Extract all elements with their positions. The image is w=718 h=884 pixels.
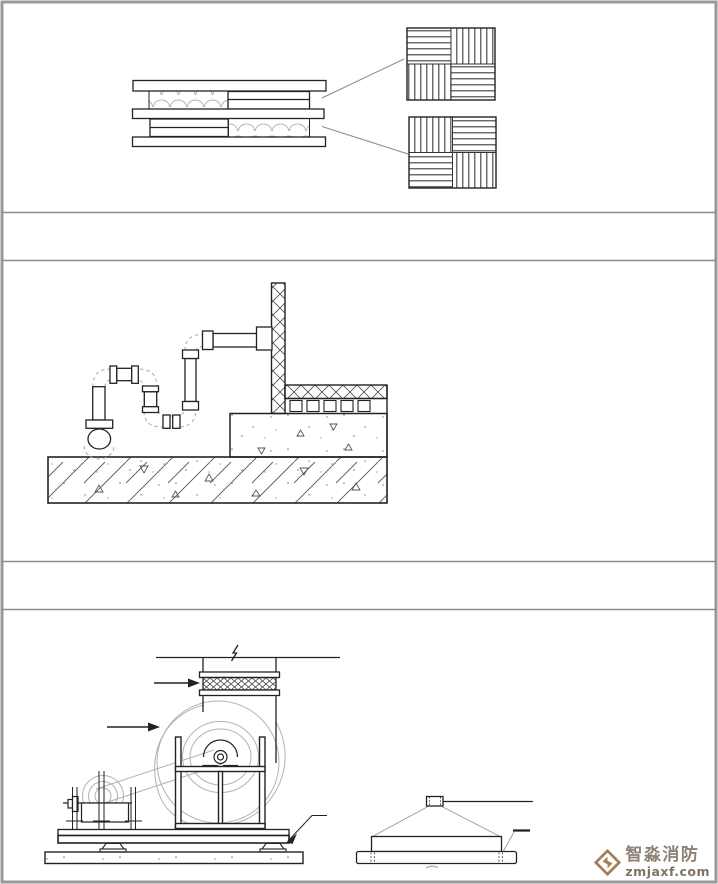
insulation-infill-bottom-right bbox=[228, 119, 309, 138]
cad-drawing bbox=[0, 0, 718, 884]
fan-installation-drawing bbox=[45, 645, 533, 868]
hatch-detail-top bbox=[407, 28, 495, 100]
watermark: 智淼消防 zmjaxf.com bbox=[591, 846, 713, 879]
isolator-base-pad bbox=[357, 852, 517, 864]
mounting-studs bbox=[66, 771, 142, 829]
anchor-blocks bbox=[290, 401, 370, 412]
motor-drive bbox=[63, 771, 142, 829]
top-plate bbox=[133, 81, 326, 92]
insulation-infill-top-left bbox=[149, 91, 228, 109]
conduit-wall-section-drawing bbox=[48, 283, 387, 503]
arrow-icon bbox=[154, 679, 200, 688]
bottom-plate bbox=[133, 137, 326, 147]
floor-slab bbox=[48, 457, 387, 503]
pipe-break-icon bbox=[232, 645, 239, 661]
concrete-pad bbox=[45, 852, 303, 864]
panel-infill-top-right bbox=[228, 92, 310, 110]
sandwich-assembly-drawing bbox=[133, 81, 327, 147]
arrow-icon bbox=[107, 723, 160, 732]
isolator-leader-line bbox=[287, 816, 328, 845]
watermark-brand: 智淼消防 bbox=[625, 847, 710, 865]
middle-plate bbox=[133, 109, 325, 119]
hatch-detail-bottom bbox=[409, 117, 496, 188]
diamond-z-logo-icon bbox=[594, 848, 621, 877]
vibration-isolator-feet bbox=[100, 844, 286, 853]
isolator-platform bbox=[372, 837, 502, 852]
vibration-isolator-detail bbox=[357, 797, 534, 869]
equipment-pedestal bbox=[230, 414, 387, 458]
watermark-domain: zmjaxf.com bbox=[625, 865, 710, 878]
flexible-connector bbox=[203, 678, 276, 691]
detail-leader-lines bbox=[322, 59, 408, 154]
hatched-channel bbox=[285, 385, 387, 399]
annotation-arrows bbox=[107, 679, 200, 732]
drawing-sheet: 智淼消防 zmjaxf.com bbox=[0, 0, 718, 884]
base-frame bbox=[58, 830, 289, 844]
